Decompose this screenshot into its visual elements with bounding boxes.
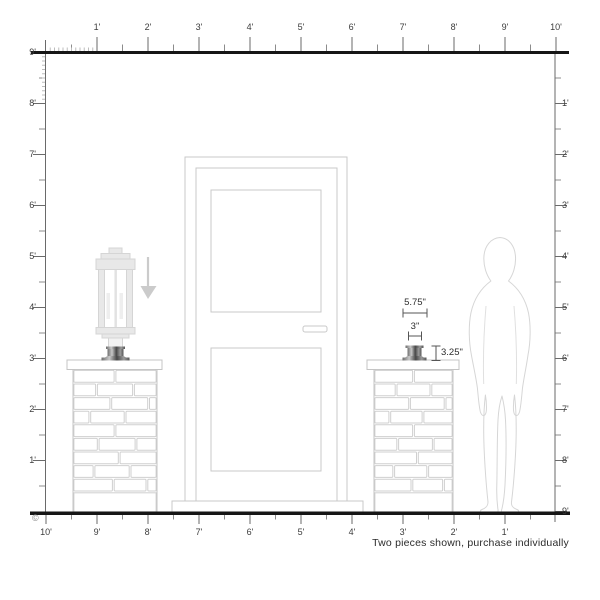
ruler-label-top-1: 2' [133,22,163,33]
ruler-label-top-2: 3' [184,22,214,33]
pier-cap [367,360,459,370]
door-window-upper [211,190,321,312]
pier-mount-base-left [102,347,130,361]
ruler-label-right-5: 6' [562,353,569,364]
down-arrow-icon [141,257,157,299]
door-handle [303,326,327,332]
drawing-canvas [0,0,600,600]
pier-mount-base-right [403,346,427,361]
ruler-label-right-2: 3' [562,200,569,211]
ruler-label-left-0: 9' [6,47,36,58]
dimension-label-outer-width: 5.75" [385,297,445,308]
pier-cap [67,360,162,370]
candle [120,293,124,319]
ruler-label-left-8: 1' [6,455,36,466]
ruler-label-top-7: 8' [439,22,469,33]
door-window-lower [211,348,321,471]
ruler-label-right-4: 5' [562,302,569,313]
caption: Two pieces shown, purchase individually [372,537,569,549]
ruler-label-right-0: 1' [562,98,569,109]
dimension-label-inner-width: 3" [385,321,445,332]
ruler-label-left-3: 6' [6,200,36,211]
copyright-symbol: © [32,513,39,523]
dimension-label-height: 3.25" [441,347,463,358]
ruler-label-right-1: 2' [562,149,569,160]
door [172,157,363,513]
ruler-label-bottom-4: 6' [235,527,265,538]
ruler-label-left-4: 5' [6,251,36,262]
ruler-label-bottom-5: 5' [286,527,316,538]
ruler-label-left-2: 7' [6,149,36,160]
ruler-label-right-7: 8' [562,455,569,466]
ruler-label-left-1: 8' [6,98,36,109]
ruler-label-top-0: 1' [82,22,112,33]
ruler-label-top-3: 4' [235,22,265,33]
ruler-label-left-5: 4' [6,302,36,313]
ruler-label-top-8: 9' [490,22,520,33]
ruler-label-bottom-3: 7' [184,527,214,538]
ruler-label-left-7: 2' [6,404,36,415]
ruler-label-right-8: 9' [562,506,569,517]
candle [107,293,111,319]
ruler-label-bottom-6: 4' [337,527,367,538]
ruler-label-bottom-2: 8' [133,527,163,538]
ruler-label-top-4: 5' [286,22,316,33]
ruler-label-left-6: 3' [6,353,36,364]
ruler-label-top-5: 6' [337,22,367,33]
ruler-label-right-6: 7' [562,404,569,415]
ruler-label-right-3: 4' [562,251,569,262]
human-silhouette [469,238,530,514]
ruler-label-top-9: 10' [541,22,571,33]
ruler-label-bottom-1: 9' [82,527,112,538]
door-sill [172,501,363,513]
scale-diagram: 1'2'3'4'5'6'7'8'9'10'10'9'8'7'6'5'4'3'2'… [0,0,600,600]
ruler-label-top-6: 7' [388,22,418,33]
ruler-label-bottom-0: 10' [31,527,61,538]
pier-lantern-ghost [96,248,135,348]
